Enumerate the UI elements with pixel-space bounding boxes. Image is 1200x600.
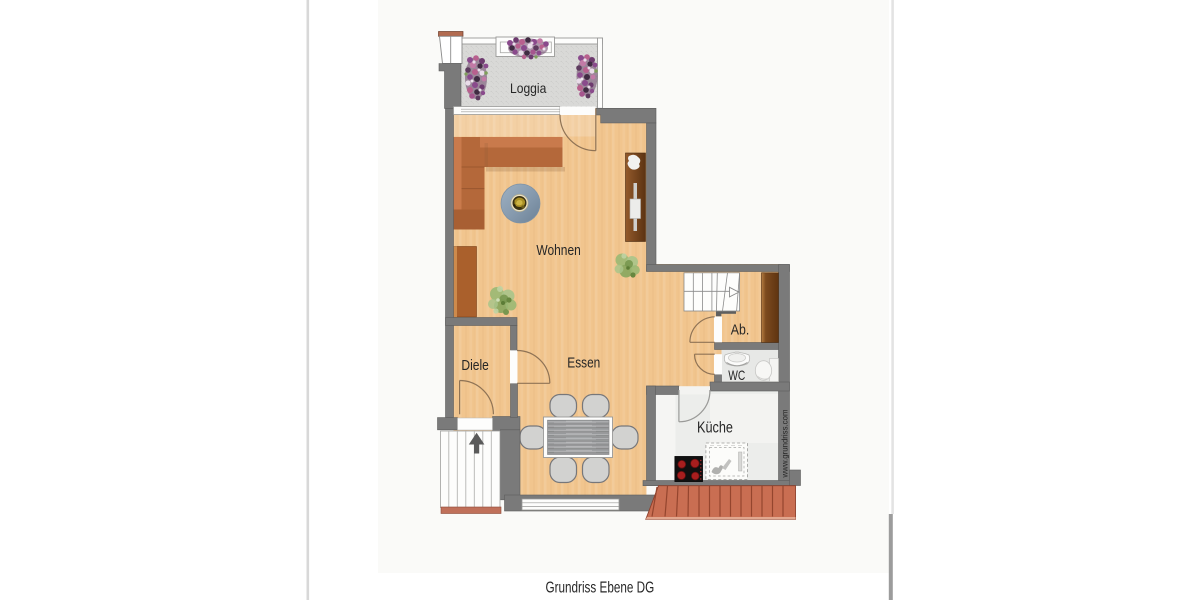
svg-text:Wohnen: Wohnen (536, 242, 580, 259)
svg-text:www.grundriss.com: www.grundriss.com (780, 410, 790, 479)
svg-text:Essen: Essen (567, 355, 600, 372)
svg-text:WC: WC (728, 367, 745, 383)
svg-text:Grundriss Ebene DG: Grundriss Ebene DG (546, 579, 655, 596)
svg-text:Ab.: Ab. (731, 322, 750, 339)
svg-text:Küche: Küche (697, 420, 733, 437)
svg-text:Loggia: Loggia (510, 80, 546, 96)
svg-text:Diele: Diele (461, 357, 489, 374)
